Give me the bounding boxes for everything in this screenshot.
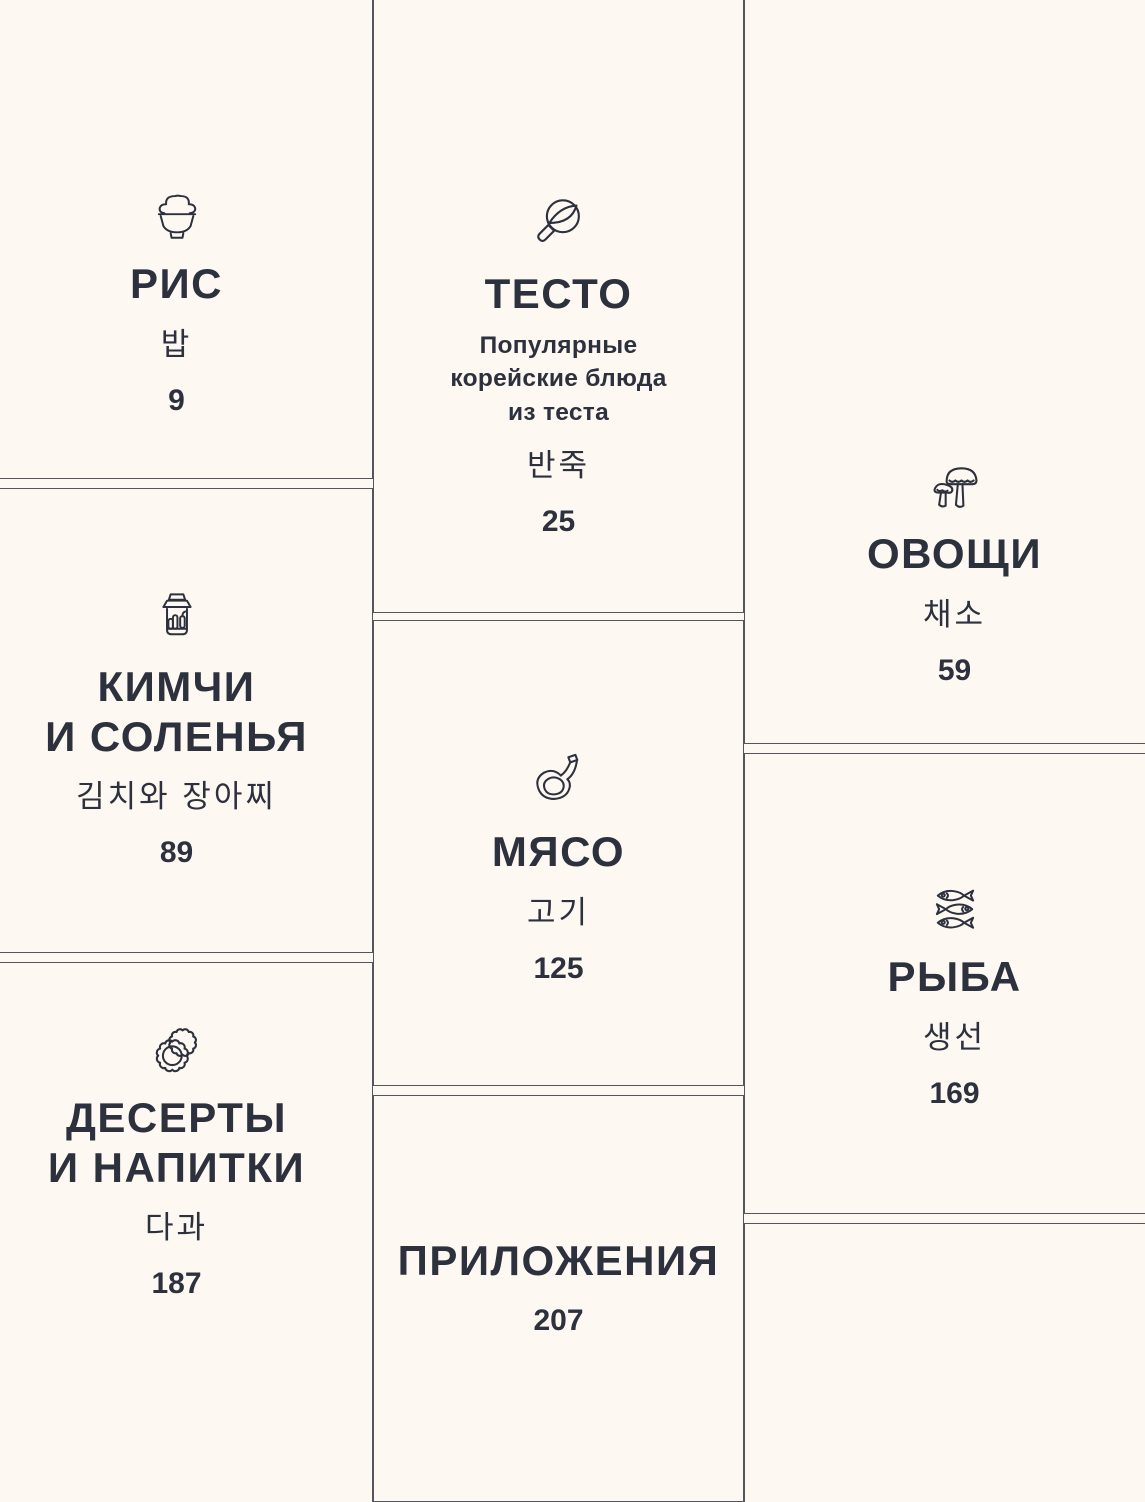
category-page-number: 59: [938, 650, 971, 692]
category-page-number: 125: [533, 948, 583, 990]
category-subtitle: Популярные корейские блюда из теста: [450, 329, 666, 430]
toc-card-vegetables[interactable]: ОВОЩИ 채소 59: [744, 0, 1145, 744]
category-korean-label: 김치와 장아찌: [76, 775, 277, 818]
category-title: РЫБА: [887, 952, 1021, 1002]
pickle-jar-icon: [148, 584, 206, 648]
category-korean-label: 반죽: [527, 444, 590, 487]
category-korean-label: 고기: [527, 891, 590, 934]
category-title: МЯСО: [492, 827, 625, 877]
category-page-number: 187: [151, 1263, 201, 1305]
toc-card-desserts[interactable]: ДЕСЕРТЫ И НАПИТКИ 다과 187: [0, 962, 373, 1502]
category-title: РИС: [130, 259, 223, 309]
mushrooms-icon: [925, 451, 985, 515]
toc-card-meat[interactable]: МЯСО 고기 125: [373, 620, 744, 1086]
toc-card-appendix[interactable]: ПРИЛОЖЕНИЯ 207: [373, 1095, 744, 1502]
meat-bone-icon: [529, 749, 589, 813]
category-page-number: 89: [160, 832, 193, 874]
category-page-number: 25: [542, 501, 575, 543]
category-page-number: 207: [533, 1300, 583, 1342]
plates-icon: [147, 1015, 207, 1079]
category-page-number: 169: [929, 1073, 979, 1115]
category-title: ОВОЩИ: [867, 529, 1042, 579]
rice-bowl-icon: [148, 181, 206, 245]
table-of-contents-page: РИС 밥 9 ТЕСТО Популярные корейские блюда…: [0, 0, 1145, 1502]
category-korean-label: 다과: [145, 1206, 208, 1249]
category-title: ТЕСТО: [485, 269, 633, 319]
category-korean-label: 채소: [923, 593, 986, 636]
category-title: ДЕСЕРТЫ И НАПИТКИ: [48, 1093, 305, 1192]
toc-card-fish[interactable]: РЫБА 생선 169: [744, 753, 1145, 1214]
toc-card-dough[interactable]: ТЕСТО Популярные корейские блюда из тест…: [373, 0, 744, 613]
category-korean-label: 생선: [923, 1016, 986, 1059]
category-korean-label: 밥: [161, 323, 193, 366]
toc-card-empty: [744, 1223, 1145, 1502]
category-page-number: 9: [168, 380, 185, 422]
category-title: КИМЧИ И СОЛЕНЬЯ: [45, 662, 308, 761]
toc-card-kimchi[interactable]: КИМЧИ И СОЛЕНЬЯ 김치와 장아찌 89: [0, 488, 373, 953]
frying-pan-icon: [528, 191, 590, 255]
category-title: ПРИЛОЖЕНИЯ: [398, 1236, 720, 1286]
toc-card-rice[interactable]: РИС 밥 9: [0, 0, 373, 479]
fish-icon: [926, 874, 984, 938]
